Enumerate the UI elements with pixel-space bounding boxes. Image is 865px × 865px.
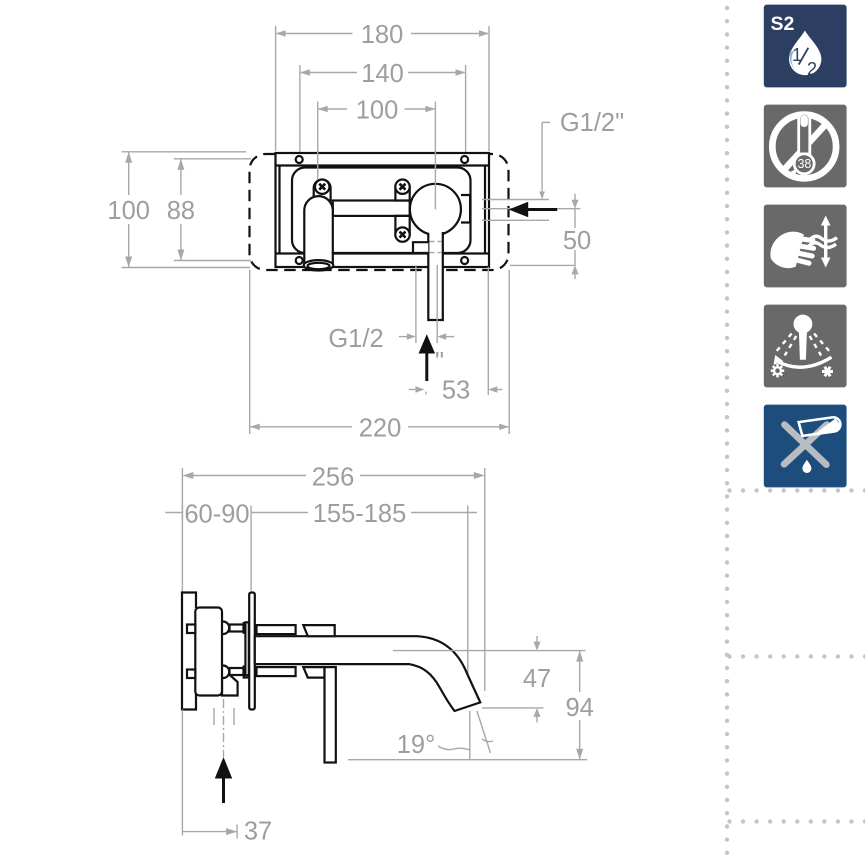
svg-text:38: 38 bbox=[797, 157, 811, 171]
svg-text:220: 220 bbox=[359, 414, 402, 442]
svg-text:100: 100 bbox=[356, 97, 399, 125]
svg-text:50: 50 bbox=[563, 227, 591, 255]
svg-text:G1/2": G1/2" bbox=[560, 109, 624, 137]
svg-text:": " bbox=[435, 348, 444, 376]
svg-text:G1/2: G1/2 bbox=[328, 325, 383, 353]
svg-text:140: 140 bbox=[361, 60, 404, 88]
svg-text:180: 180 bbox=[361, 21, 404, 49]
svg-text:19°: 19° bbox=[397, 731, 436, 759]
svg-text:60-90: 60-90 bbox=[184, 501, 249, 529]
svg-text:256: 256 bbox=[312, 464, 355, 492]
svg-text:2: 2 bbox=[807, 59, 817, 79]
svg-text:53: 53 bbox=[442, 377, 470, 405]
svg-text:94: 94 bbox=[566, 694, 594, 722]
svg-text:100: 100 bbox=[107, 197, 150, 225]
svg-text:155-185: 155-185 bbox=[313, 500, 407, 528]
svg-text:88: 88 bbox=[167, 197, 195, 225]
svg-text:47: 47 bbox=[523, 665, 551, 693]
svg-text:37: 37 bbox=[244, 818, 272, 846]
svg-text:S2: S2 bbox=[771, 13, 795, 35]
